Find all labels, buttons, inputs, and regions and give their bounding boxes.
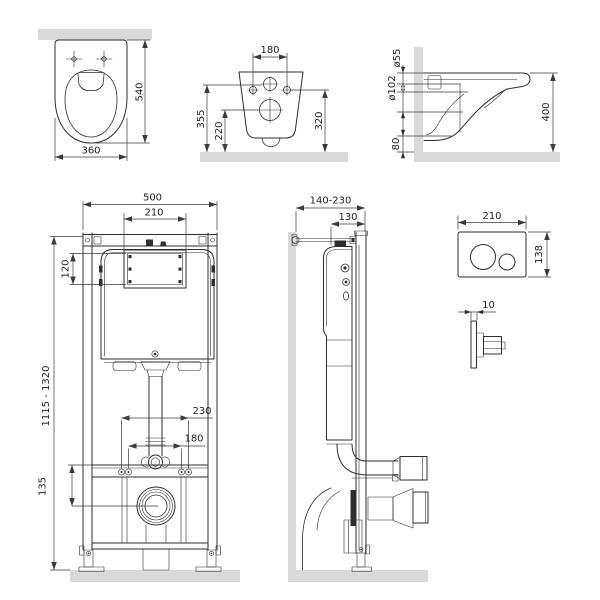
toilet-rear-view: 180 355 220 320 xyxy=(196,45,348,162)
dim-frame-depth: 130 xyxy=(338,212,357,223)
dim-toilet-width: 360 xyxy=(81,146,100,157)
cistern-side-clips xyxy=(99,266,215,287)
wall-section xyxy=(288,232,296,570)
toilet-seat-outline xyxy=(65,70,117,137)
water-inlet-fittings xyxy=(146,240,167,247)
adjustable-feet xyxy=(79,546,221,572)
flush-plate-side-view: 10 xyxy=(458,300,505,368)
mounting-studs xyxy=(119,469,192,475)
crosshair-lines xyxy=(248,77,293,124)
cistern-outline xyxy=(101,250,214,360)
dimension-lines xyxy=(458,312,496,320)
dim-window-width: 210 xyxy=(144,208,163,219)
dim-bolt-height: 320 xyxy=(314,111,325,130)
flush-button-large xyxy=(471,245,496,270)
dim-plate-height: 138 xyxy=(534,245,545,264)
frame-rail-profile xyxy=(356,232,366,553)
cistern-service-buttons xyxy=(341,264,349,300)
flush-valve-cap-dot xyxy=(154,353,157,356)
dim-window-height: 120 xyxy=(61,259,72,278)
drain-boot xyxy=(143,549,169,570)
floor-section xyxy=(200,152,348,162)
frame-front-view: 500 210 120 1115 - 1320 230 180 135 xyxy=(38,193,241,583)
plate-profile xyxy=(471,321,477,368)
cistern-details xyxy=(104,253,211,363)
access-window xyxy=(124,250,186,288)
mounting-hole-marker xyxy=(66,51,112,67)
dim-inlet-height: 355 xyxy=(196,109,207,128)
dim-flush-pipe-diameter: ø55 xyxy=(392,49,403,68)
dim-plate-width: 210 xyxy=(482,211,501,222)
dim-outlet-height: 220 xyxy=(214,121,225,140)
dim-toilet-depth: 540 xyxy=(135,82,146,101)
frame-rails xyxy=(83,233,217,550)
dim-frame-height: 1115 - 1320 xyxy=(41,366,52,427)
plate-collar xyxy=(477,333,484,357)
flush-elbow xyxy=(149,455,163,469)
access-window-clips xyxy=(129,255,182,283)
floor-section xyxy=(414,152,560,162)
dim-outlet-center-height: 135 xyxy=(38,477,49,496)
toilet-profile-details xyxy=(424,76,517,136)
flush-plate-outline xyxy=(458,232,526,277)
dim-bolt-spacing: 180 xyxy=(260,45,279,56)
dimension-lines xyxy=(50,201,217,570)
toilet-side-view: ø55 ø102 80 400 xyxy=(387,47,560,162)
flush-bend-pipe xyxy=(337,444,427,481)
lower-crossbar xyxy=(92,543,208,549)
flush-elbow-wings xyxy=(141,457,169,467)
cistern-bottom-fittings xyxy=(113,362,201,377)
plate-mechanism-box xyxy=(484,337,502,355)
dim-depth-range: 140-230 xyxy=(310,196,352,207)
toilet-profile-outline xyxy=(424,73,530,141)
dim-rim-height: 400 xyxy=(541,102,552,121)
seat-lid-detail xyxy=(78,73,104,91)
wall-section xyxy=(38,29,152,40)
flush-button-small xyxy=(499,254,515,270)
dim-plate-thickness: 10 xyxy=(482,300,495,311)
installation-drawing: 540 360 180 355 220 320 xyxy=(0,0,600,600)
wall-anchor xyxy=(292,235,356,246)
mechanism-details xyxy=(484,342,506,350)
toilet-top-view: 540 360 xyxy=(38,29,152,161)
flush-plate-front-view: 210 138 xyxy=(458,211,551,277)
dim-inner-bolt-spacing: 180 xyxy=(184,434,203,445)
dim-outer-bolt-spacing: 230 xyxy=(192,406,211,417)
dim-frame-width: 500 xyxy=(143,193,162,204)
dim-outlet-pipe-diameter: ø102 xyxy=(387,75,398,100)
frame-side-view: 140-230 130 xyxy=(288,196,428,583)
bowl-foot xyxy=(262,138,280,147)
toilet-rear-outline xyxy=(239,72,303,138)
dim-outlet-clearance: 80 xyxy=(391,138,402,151)
access-window-inner xyxy=(128,254,183,285)
flush-pipe xyxy=(149,377,162,457)
